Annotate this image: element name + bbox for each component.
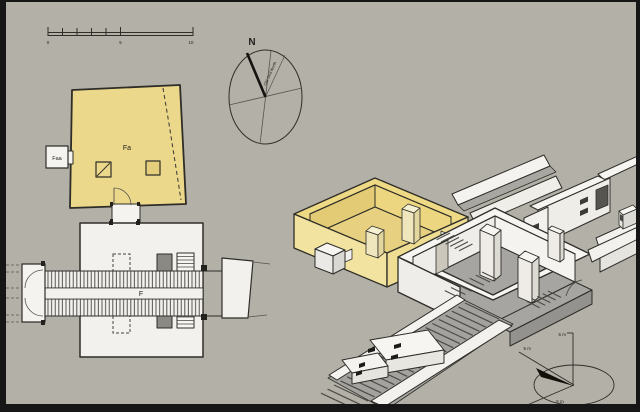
wall-slab	[548, 226, 564, 262]
axis-label-southwest: 5 m	[556, 399, 564, 404]
frame-left	[0, 0, 6, 412]
main-pillar-2	[518, 251, 539, 303]
shaft-north	[157, 254, 172, 271]
pillar-base-east	[146, 161, 160, 175]
axis-label-northwest: 5 m	[523, 346, 531, 351]
tomb-plan-figure: 0 5 10 N Old Grid North Fa Faa	[0, 0, 640, 412]
frame-bottom	[0, 404, 640, 412]
frame-right	[636, 0, 640, 412]
figure-canvas: 0 5 10 N Old Grid North Fa Faa	[0, 0, 640, 412]
chapel-doorway	[112, 204, 140, 224]
east-annex-room	[222, 258, 253, 318]
chapel-pillar-b	[402, 204, 420, 244]
corridor-f: F	[40, 264, 222, 322]
stair-band-north	[45, 271, 203, 288]
north-label: N	[248, 37, 255, 48]
chapel-fa-label: Fa	[123, 145, 131, 152]
chapel-pillar-a	[366, 226, 384, 258]
stair-feature-north	[177, 253, 194, 271]
stair-band-south	[45, 299, 203, 316]
scale-label-10: 10	[188, 40, 194, 45]
annex-faa-label: Faa	[52, 156, 62, 162]
corridor-f-label: F	[139, 291, 143, 298]
central-ramp	[45, 288, 203, 299]
frame-top	[0, 0, 640, 2]
axis-label-vertical: 5 m	[558, 332, 566, 337]
doorway-to-chapel	[436, 240, 448, 274]
